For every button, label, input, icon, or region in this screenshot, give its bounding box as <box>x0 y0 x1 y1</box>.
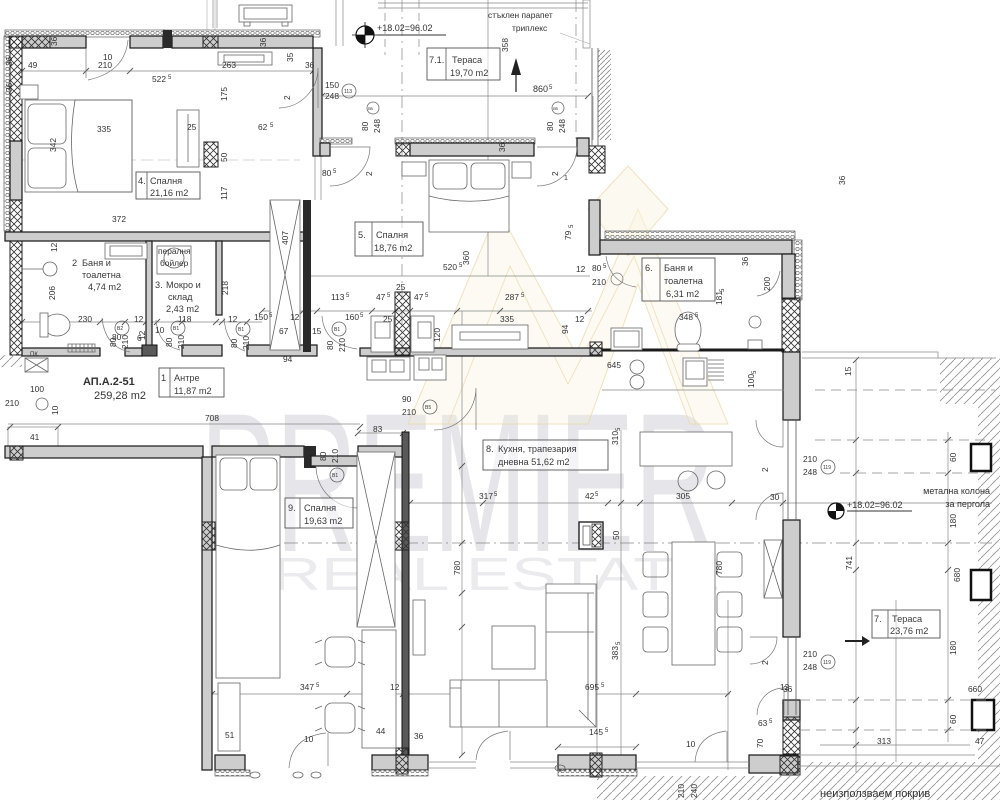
svg-text:240: 240 <box>689 784 699 798</box>
svg-text:2: 2 <box>760 467 770 472</box>
svg-text:90: 90 <box>402 394 412 404</box>
svg-text:248: 248 <box>803 662 817 672</box>
svg-text:2: 2 <box>760 660 770 665</box>
svg-text:210: 210 <box>803 649 817 659</box>
svg-text:60: 60 <box>948 452 958 462</box>
svg-text:Тераса: Тераса <box>892 614 923 624</box>
svg-text:210: 210 <box>120 335 130 349</box>
svg-text:B1: B1 <box>334 327 340 333</box>
svg-text:6.: 6. <box>645 263 653 273</box>
svg-text:348: 348 <box>679 312 693 322</box>
svg-text:248: 248 <box>372 119 382 133</box>
svg-text:25: 25 <box>396 282 406 292</box>
svg-text:210: 210 <box>241 336 251 350</box>
svg-text:6: 6 <box>137 333 142 343</box>
svg-text:210: 210 <box>337 338 347 352</box>
svg-text:B1: B1 <box>238 327 244 333</box>
svg-text:41: 41 <box>30 432 40 442</box>
svg-text:94: 94 <box>283 354 293 364</box>
svg-text:248: 248 <box>557 119 567 133</box>
svg-text:36: 36 <box>837 175 847 185</box>
svg-text:12: 12 <box>290 312 300 322</box>
svg-text:B2: B2 <box>117 326 123 332</box>
svg-text:63: 63 <box>758 718 768 728</box>
svg-text:358: 358 <box>500 38 510 52</box>
svg-text:100: 100 <box>746 374 756 388</box>
svg-text:80: 80 <box>318 451 328 461</box>
svg-text:80: 80 <box>108 337 118 347</box>
svg-text:218: 218 <box>220 281 230 295</box>
svg-text:+18.02=96.02: +18.02=96.02 <box>377 23 433 33</box>
svg-text:80: 80 <box>325 340 335 350</box>
svg-text:210: 210 <box>5 398 19 408</box>
svg-text:113: 113 <box>344 89 352 95</box>
svg-text:12: 12 <box>134 314 144 324</box>
svg-text:118: 118 <box>178 314 192 324</box>
svg-text:36: 36 <box>4 82 14 92</box>
svg-text:150: 150 <box>254 312 268 322</box>
svg-text:4.: 4. <box>138 176 146 186</box>
svg-text:206: 206 <box>47 286 57 300</box>
svg-text:80: 80 <box>229 338 239 348</box>
svg-text:23,76 m2: 23,76 m2 <box>890 626 928 636</box>
svg-text:62: 62 <box>258 122 268 132</box>
svg-text:36: 36 <box>305 60 315 70</box>
svg-text:12: 12 <box>575 314 585 324</box>
svg-text:10: 10 <box>155 325 165 335</box>
svg-text:пв: пв <box>368 106 373 111</box>
svg-text:120: 120 <box>432 328 442 342</box>
svg-text:15: 15 <box>843 366 853 376</box>
svg-text:10: 10 <box>50 405 60 415</box>
svg-text:407: 407 <box>280 231 290 245</box>
svg-text:347: 347 <box>300 682 314 692</box>
svg-text:36: 36 <box>258 37 268 47</box>
svg-text:42: 42 <box>585 491 595 501</box>
svg-text:неизползваем покрив: неизползваем покрив <box>820 788 930 800</box>
svg-text:94: 94 <box>560 324 570 334</box>
svg-text:305: 305 <box>676 491 690 501</box>
svg-text:150: 150 <box>325 80 339 90</box>
svg-text:175: 175 <box>219 87 229 101</box>
svg-text:680: 680 <box>952 568 962 582</box>
svg-text:36: 36 <box>783 684 793 694</box>
svg-text:12: 12 <box>390 682 400 692</box>
svg-text:+18.02=96.02: +18.02=96.02 <box>847 500 903 510</box>
svg-text:15: 15 <box>312 326 322 336</box>
svg-text:51: 51 <box>225 730 235 740</box>
svg-text:B1: B1 <box>173 326 179 332</box>
svg-text:7.1.: 7.1. <box>429 55 444 65</box>
svg-text:335: 335 <box>97 124 111 134</box>
svg-text:780: 780 <box>452 561 462 575</box>
svg-text:708: 708 <box>205 413 219 423</box>
svg-text:160: 160 <box>345 312 359 322</box>
svg-text:113: 113 <box>331 292 345 302</box>
svg-text:Баня и: Баня и <box>82 258 111 268</box>
svg-text:36: 36 <box>497 142 507 152</box>
svg-text:145: 145 <box>589 727 603 737</box>
svg-text:263: 263 <box>222 60 236 70</box>
svg-text:200: 200 <box>762 277 772 291</box>
svg-text:50: 50 <box>219 152 229 162</box>
svg-text:Антре: Антре <box>174 373 200 383</box>
svg-text:Спалня: Спалня <box>376 230 408 240</box>
svg-text:тоалетна: тоалетна <box>82 270 122 280</box>
svg-text:372: 372 <box>112 214 126 224</box>
svg-text:за пергола: за пергола <box>945 499 990 509</box>
svg-text:6,31 m2: 6,31 m2 <box>666 289 699 299</box>
svg-text:49: 49 <box>28 60 38 70</box>
svg-text:44: 44 <box>376 726 386 736</box>
svg-text:259,28 m2: 259,28 m2 <box>94 390 146 402</box>
svg-text:11,87 m2: 11,87 m2 <box>174 386 212 396</box>
svg-text:стъклен парапет: стъклен парапет <box>488 10 553 20</box>
svg-text:1: 1 <box>161 373 166 383</box>
svg-text:342: 342 <box>48 138 58 152</box>
svg-text:10: 10 <box>304 734 314 744</box>
svg-text:60: 60 <box>948 714 958 724</box>
svg-text:5.: 5. <box>358 230 366 240</box>
svg-text:47: 47 <box>414 292 424 302</box>
svg-text:Кухня, трапезария: Кухня, трапезария <box>498 444 577 454</box>
svg-text:83: 83 <box>373 424 383 434</box>
svg-text:67: 67 <box>279 326 289 336</box>
svg-text:2: 2 <box>282 95 292 100</box>
svg-text:80: 80 <box>545 121 555 131</box>
svg-text:47: 47 <box>376 292 386 302</box>
svg-text:пв: пв <box>553 106 558 111</box>
svg-text:триплекс: триплекс <box>512 23 547 33</box>
svg-text:2: 2 <box>72 258 77 268</box>
svg-text:180: 180 <box>948 514 958 528</box>
svg-text:80: 80 <box>164 337 174 347</box>
svg-text:660: 660 <box>968 684 982 694</box>
svg-text:100: 100 <box>30 384 44 394</box>
svg-text:АП.А.2-51: АП.А.2-51 <box>83 376 135 388</box>
svg-text:12: 12 <box>49 242 59 252</box>
svg-text:19,70 m2: 19,70 m2 <box>450 68 488 78</box>
svg-text:79: 79 <box>563 230 573 240</box>
svg-text:10: 10 <box>686 739 696 749</box>
svg-text:2,43 m2: 2,43 m2 <box>166 304 199 314</box>
svg-text:317: 317 <box>479 491 493 501</box>
svg-text:70: 70 <box>755 738 765 748</box>
svg-text:248: 248 <box>325 91 339 101</box>
svg-text:117: 117 <box>219 186 229 200</box>
svg-text:119: 119 <box>823 465 831 471</box>
svg-text:Спалня: Спалня <box>150 176 182 186</box>
svg-text:2: 2 <box>364 171 374 176</box>
svg-text:4,74 m2: 4,74 m2 <box>88 282 121 292</box>
svg-text:10: 10 <box>103 52 113 62</box>
svg-text:36: 36 <box>49 36 59 46</box>
svg-text:645: 645 <box>607 360 621 370</box>
svg-text:12: 12 <box>228 314 238 324</box>
svg-text:210: 210 <box>402 407 416 417</box>
svg-text:80: 80 <box>592 263 602 273</box>
svg-text:210: 210 <box>803 454 817 464</box>
svg-text:780: 780 <box>714 561 724 575</box>
svg-text:80: 80 <box>322 168 332 178</box>
svg-text:180: 180 <box>948 641 958 655</box>
svg-text:520: 520 <box>443 262 457 272</box>
svg-text:пералня: пералня <box>158 246 191 256</box>
svg-text:741: 741 <box>844 556 854 570</box>
svg-text:19,63 m2: 19,63 m2 <box>304 516 342 526</box>
svg-text:тоалетна: тоалетна <box>664 276 704 286</box>
svg-text:склад: склад <box>168 292 193 302</box>
svg-text:1: 1 <box>564 175 568 182</box>
svg-text:860: 860 <box>533 84 548 94</box>
svg-text:3.: 3. <box>155 280 163 290</box>
svg-text:695: 695 <box>585 682 599 692</box>
svg-text:8.: 8. <box>486 444 494 454</box>
svg-text:18,76 m2: 18,76 m2 <box>374 243 412 253</box>
svg-text:2: 2 <box>550 171 560 176</box>
svg-text:36: 36 <box>414 731 424 741</box>
svg-text:9.: 9. <box>288 503 296 513</box>
svg-text:30: 30 <box>770 492 780 502</box>
svg-text:Баня и: Баня и <box>664 263 693 273</box>
svg-text:бойлер: бойлер <box>160 258 189 268</box>
svg-text:ПК: ПК <box>30 352 38 358</box>
svg-text:12: 12 <box>576 264 586 274</box>
svg-text:метална колона: метална колона <box>923 486 990 496</box>
svg-text:Тераса: Тераса <box>452 55 483 65</box>
svg-text:119: 119 <box>823 660 831 666</box>
svg-text:21,16 m2: 21,16 m2 <box>150 188 188 198</box>
svg-text:522: 522 <box>152 74 166 84</box>
svg-text:80: 80 <box>360 121 370 131</box>
svg-text:230: 230 <box>78 314 92 324</box>
svg-text:36: 36 <box>740 256 750 266</box>
svg-text:210: 210 <box>330 449 340 463</box>
svg-text:B5: B5 <box>425 405 431 411</box>
svg-text:Мокро и: Мокро и <box>166 280 201 290</box>
svg-text:B1: B1 <box>332 473 338 479</box>
svg-text:310: 310 <box>610 431 620 445</box>
svg-text:36: 36 <box>4 56 14 66</box>
svg-text:335: 335 <box>500 314 514 324</box>
svg-text:210: 210 <box>592 277 606 287</box>
svg-text:210: 210 <box>176 335 186 349</box>
svg-text:287: 287 <box>505 292 519 302</box>
svg-text:25: 25 <box>383 314 393 324</box>
svg-text:47: 47 <box>975 736 985 746</box>
svg-text:50: 50 <box>611 530 621 540</box>
svg-text:дневна 51,62 m2: дневна 51,62 m2 <box>498 457 569 467</box>
svg-text:248: 248 <box>803 467 817 477</box>
svg-text:7.: 7. <box>874 614 882 624</box>
svg-text:360: 360 <box>461 251 471 265</box>
svg-text:Спалня: Спалня <box>304 503 336 513</box>
svg-text:383: 383 <box>610 646 620 660</box>
svg-text:210: 210 <box>676 784 686 798</box>
svg-text:35: 35 <box>285 52 295 62</box>
svg-text:25: 25 <box>187 122 197 132</box>
svg-text:313: 313 <box>877 736 891 746</box>
